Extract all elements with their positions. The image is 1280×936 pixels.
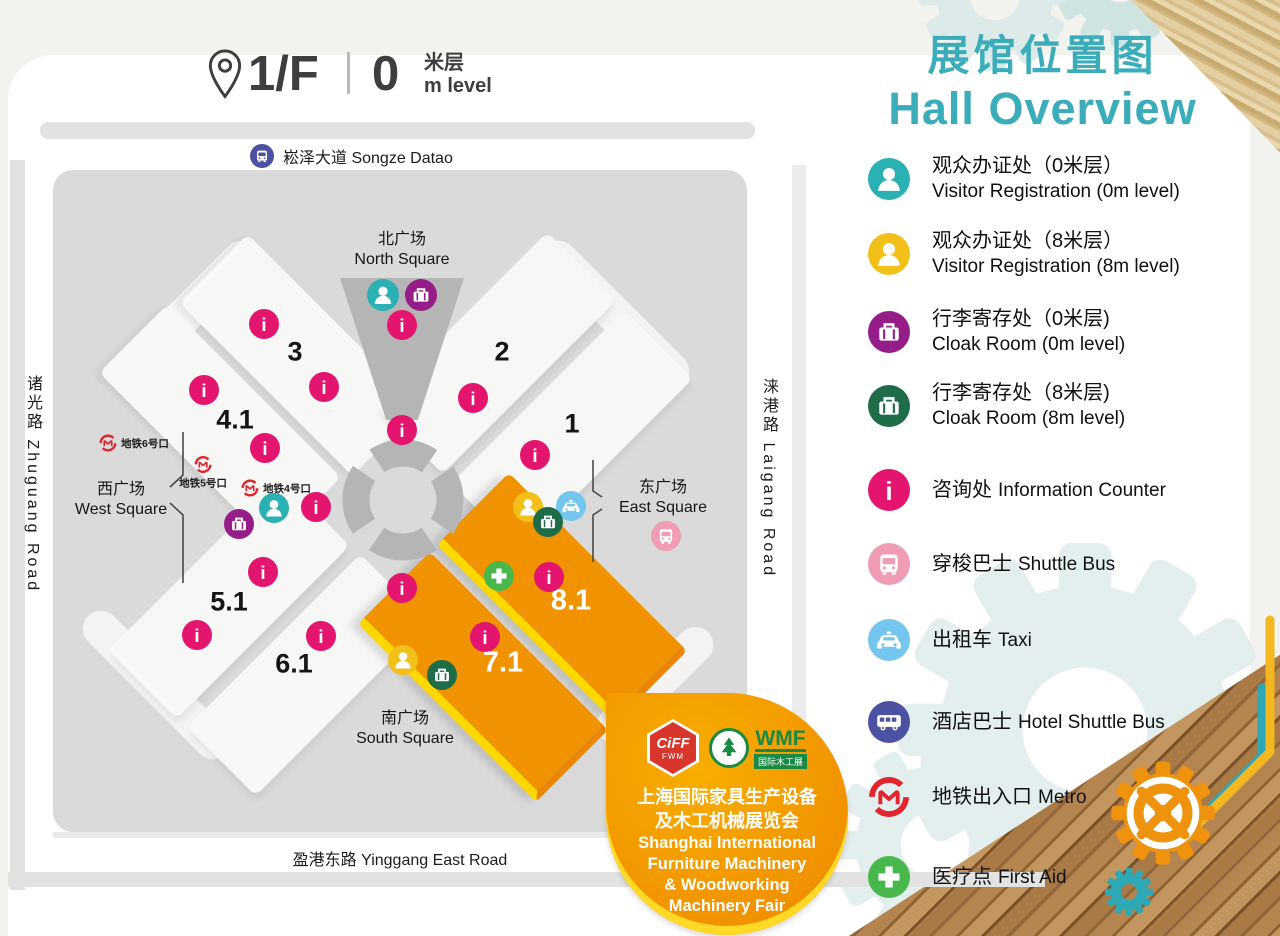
bus-icon xyxy=(868,543,910,585)
fair-name-en: Shanghai International Furniture Machine… xyxy=(638,833,816,917)
page-title-zh: 展馆位置图 xyxy=(845,22,1240,83)
info-icon xyxy=(868,469,910,511)
bus-icon xyxy=(250,144,274,168)
legend-item-metro: 地铁出入口Metro xyxy=(868,776,1087,818)
hall-label: 4.1 xyxy=(216,405,254,436)
fair-name-zh: 上海国际家具生产设备 及木工机械展览会 xyxy=(637,785,817,833)
info-marker xyxy=(306,621,336,651)
visitor-registration-8m-marker xyxy=(388,645,418,675)
south-square-label: 南广场 South Square xyxy=(356,709,454,749)
east-road-label: 涞港路 Laigang Road xyxy=(756,378,780,578)
briefcase-icon xyxy=(868,311,910,353)
info-marker xyxy=(250,433,280,463)
info-marker xyxy=(458,383,488,413)
info-marker xyxy=(189,375,219,405)
orange-gear-icon xyxy=(1105,755,1221,871)
hall-label: 5.1 xyxy=(210,587,248,618)
legend-item-visitor-registration-8m: 观众办证处（8米层）Visitor Registration (8m level… xyxy=(868,228,1180,280)
wmf-logo: WMF 国际木工展 xyxy=(709,728,807,769)
wmf-tree-icon xyxy=(709,728,749,768)
info-marker xyxy=(301,492,331,522)
legend-item-shuttle-bus: 穿梭巴士Shuttle Bus xyxy=(868,543,1115,585)
shuttle-bus-marker xyxy=(651,521,681,551)
metro-icon xyxy=(868,776,910,818)
legend-item-hotel-shuttle-bus: 酒店巴士Hotel Shuttle Bus xyxy=(868,701,1165,743)
hall-label: 1 xyxy=(564,409,579,440)
legend-item-cloak-room-0m: 行李寄存处（0米层)Cloak Room (0m level) xyxy=(868,306,1125,358)
hall-label: 3 xyxy=(287,337,302,368)
page-title: 展馆位置图 Hall Overview xyxy=(845,22,1240,135)
teal-gear-icon xyxy=(1102,865,1156,919)
first-aid-icon xyxy=(868,856,910,898)
legend-item-information-counter: 咨询处Information Counter xyxy=(868,469,1166,511)
visitor-registration-0m-marker xyxy=(367,279,399,311)
ciff-logo: CiFF FWM xyxy=(647,719,699,777)
cloak-room-8m-marker xyxy=(427,660,457,690)
location-pin-icon xyxy=(207,48,243,100)
legend-item-taxi: 出租车Taxi xyxy=(868,619,1032,661)
info-marker xyxy=(249,309,279,339)
north-road-bar xyxy=(40,122,755,139)
floor-label: 1/F xyxy=(248,46,319,102)
info-marker xyxy=(182,620,212,650)
metro-icon xyxy=(99,434,117,452)
level-value: 0 xyxy=(372,46,399,102)
metro-exit-5: 地铁5号口 xyxy=(179,456,227,491)
info-marker xyxy=(248,557,278,587)
info-marker xyxy=(470,622,500,652)
east-square-label: 东广场 East Square xyxy=(619,478,707,518)
info-marker xyxy=(309,372,339,402)
briefcase-icon xyxy=(868,385,910,427)
info-marker xyxy=(534,562,564,592)
hall-label: 6.1 xyxy=(275,649,313,680)
level-unit-en: m level xyxy=(424,75,492,98)
header-divider xyxy=(347,52,350,94)
cloak-room-0m-marker xyxy=(224,509,254,539)
person-icon xyxy=(868,233,910,275)
legend-item-first-aid: 医疗点First Aid xyxy=(868,856,1067,898)
hall-overview-poster: 1/F 0 米层 m level 展馆位置图 Hall Overview 崧泽大… xyxy=(0,0,1280,936)
legend-item-cloak-room-8m: 行李寄存处（8米层)Cloak Room (8m level) xyxy=(868,380,1125,432)
metro-exit-6: 地铁6号口 xyxy=(99,434,169,452)
metro-icon xyxy=(241,479,259,497)
info-marker xyxy=(520,440,550,470)
north-square-label: 北广场 North Square xyxy=(354,230,449,270)
level-units: 米层 m level xyxy=(424,52,492,98)
north-road-label-row: 崧泽大道 Songze Datao xyxy=(250,144,453,168)
info-marker xyxy=(387,573,417,603)
page-title-en: Hall Overview xyxy=(845,83,1240,135)
metro-icon xyxy=(194,456,212,474)
north-road-label: 崧泽大道 Songze Datao xyxy=(283,144,453,168)
cloak-room-0m-marker xyxy=(405,279,437,311)
level-unit-zh: 米层 xyxy=(424,52,492,75)
bus-icon xyxy=(868,701,910,743)
west-square-label: 西广场 West Square xyxy=(75,480,167,520)
visitor-registration-0m-marker xyxy=(259,493,289,523)
fair-logos: CiFF FWM WMF 国际木工展 xyxy=(647,719,807,777)
hall-label: 2 xyxy=(494,337,509,368)
first-aid-marker xyxy=(484,561,514,591)
info-marker xyxy=(387,415,417,445)
cloak-room-8m-marker xyxy=(533,507,563,537)
info-marker xyxy=(387,310,417,340)
fair-badge: CiFF FWM WMF 国际木工展 上海国际家具生产设备 及木工机械展览会 xyxy=(606,693,848,935)
taxi-icon xyxy=(868,619,910,661)
west-road-label: 诸光路 Zhuguang Road xyxy=(20,375,44,593)
person-icon xyxy=(868,158,910,200)
legend-item-visitor-registration-0m: 观众办证处（0米层）Visitor Registration (0m level… xyxy=(868,153,1180,205)
